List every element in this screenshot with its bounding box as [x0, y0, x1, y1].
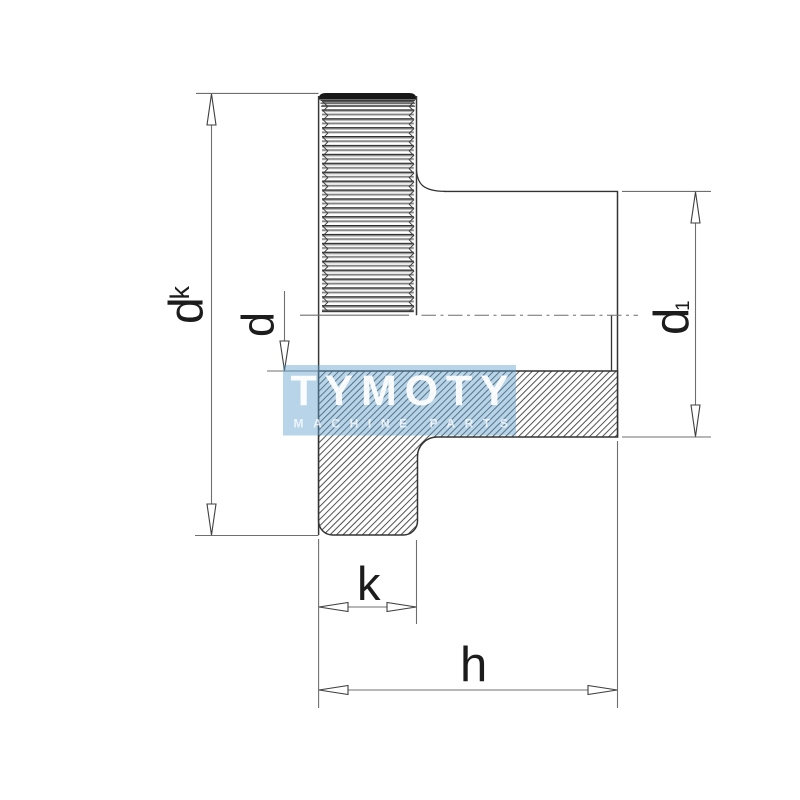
svg-text:TYMOTY: TYMOTY — [291, 367, 517, 415]
svg-text:MACHINE PARTS: MACHINE PARTS — [294, 417, 518, 431]
svg-text:k: k — [357, 557, 381, 610]
svg-text:h: h — [460, 638, 487, 692]
svg-text:d: d — [161, 297, 214, 324]
svg-text:1: 1 — [673, 300, 694, 311]
svg-text:k: k — [165, 286, 195, 300]
svg-text:d: d — [233, 312, 284, 337]
